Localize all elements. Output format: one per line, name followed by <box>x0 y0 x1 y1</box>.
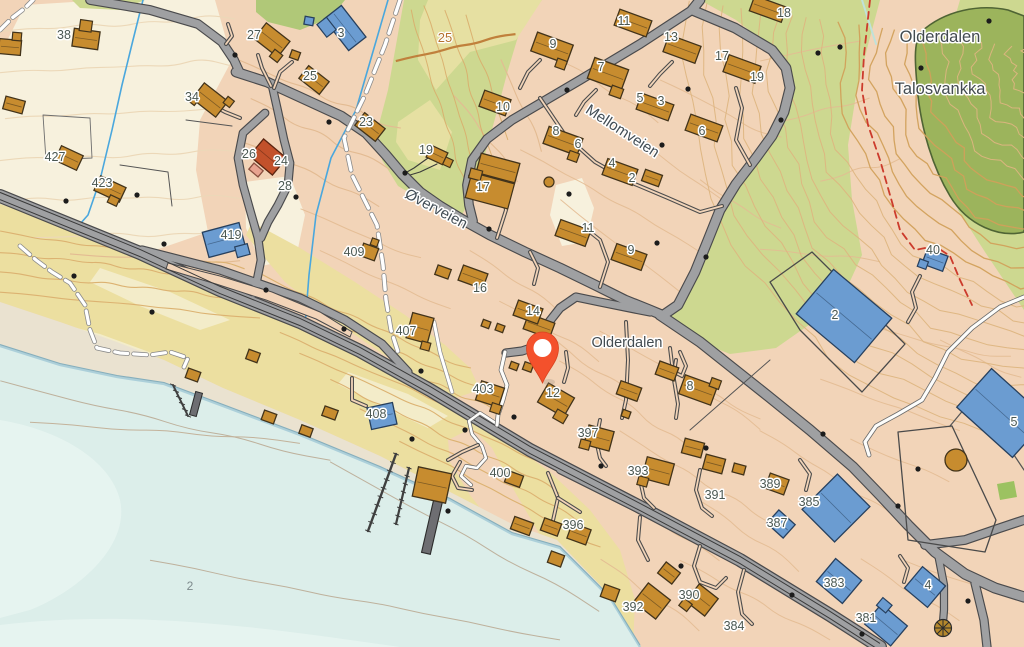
svg-text:385: 385 <box>799 495 820 509</box>
svg-text:Talosvankka: Talosvankka <box>895 80 987 98</box>
svg-text:6: 6 <box>575 137 582 151</box>
svg-text:17: 17 <box>715 49 729 63</box>
svg-text:40: 40 <box>926 243 940 257</box>
svg-text:Olderdalen: Olderdalen <box>592 335 663 351</box>
svg-text:400: 400 <box>490 466 511 480</box>
svg-text:396: 396 <box>563 518 584 532</box>
svg-text:25: 25 <box>303 69 317 83</box>
svg-text:389: 389 <box>760 477 781 491</box>
svg-text:393: 393 <box>628 464 649 478</box>
svg-text:383: 383 <box>824 576 845 590</box>
svg-text:5: 5 <box>1011 415 1018 429</box>
svg-text:8: 8 <box>687 379 694 393</box>
svg-text:381: 381 <box>856 611 877 625</box>
svg-text:28: 28 <box>278 179 292 193</box>
svg-text:392: 392 <box>623 600 644 614</box>
svg-text:407: 407 <box>396 324 417 338</box>
svg-text:408: 408 <box>366 407 387 421</box>
svg-text:Olderdalen: Olderdalen <box>900 28 981 46</box>
svg-text:18: 18 <box>777 6 791 20</box>
svg-text:17: 17 <box>476 180 490 194</box>
svg-text:4: 4 <box>925 578 932 592</box>
svg-text:38: 38 <box>57 28 71 42</box>
svg-text:2: 2 <box>832 308 839 322</box>
svg-text:9: 9 <box>550 37 557 51</box>
svg-text:3: 3 <box>338 26 345 40</box>
svg-text:7: 7 <box>598 60 605 74</box>
svg-text:419: 419 <box>221 228 242 242</box>
svg-text:10: 10 <box>496 100 510 114</box>
svg-text:390: 390 <box>679 588 700 602</box>
svg-text:12: 12 <box>546 386 560 400</box>
svg-text:6: 6 <box>699 124 706 138</box>
svg-text:25: 25 <box>438 30 452 45</box>
svg-text:11: 11 <box>582 221 595 235</box>
svg-text:4: 4 <box>609 156 616 170</box>
svg-text:2: 2 <box>187 579 194 593</box>
svg-text:5: 5 <box>637 91 644 105</box>
svg-text:391: 391 <box>705 488 726 502</box>
svg-text:24: 24 <box>274 154 288 168</box>
svg-text:397: 397 <box>578 426 599 440</box>
svg-text:23: 23 <box>359 115 373 129</box>
svg-text:3: 3 <box>658 94 665 108</box>
svg-text:8: 8 <box>553 124 560 138</box>
svg-text:19: 19 <box>750 70 764 84</box>
svg-text:384: 384 <box>724 619 745 633</box>
svg-text:14: 14 <box>526 304 540 318</box>
svg-text:26: 26 <box>242 147 256 161</box>
svg-text:9: 9 <box>628 243 635 257</box>
svg-text:427: 427 <box>45 150 66 164</box>
svg-text:19: 19 <box>419 143 433 157</box>
svg-text:13: 13 <box>664 30 678 44</box>
svg-text:403: 403 <box>473 382 494 396</box>
svg-text:16: 16 <box>473 281 487 295</box>
svg-text:11: 11 <box>618 14 631 28</box>
svg-text:387: 387 <box>767 516 788 530</box>
svg-text:423: 423 <box>92 176 113 190</box>
svg-text:409: 409 <box>344 245 365 259</box>
svg-text:2: 2 <box>629 171 636 185</box>
svg-text:27: 27 <box>247 28 261 42</box>
svg-text:34: 34 <box>185 90 199 104</box>
